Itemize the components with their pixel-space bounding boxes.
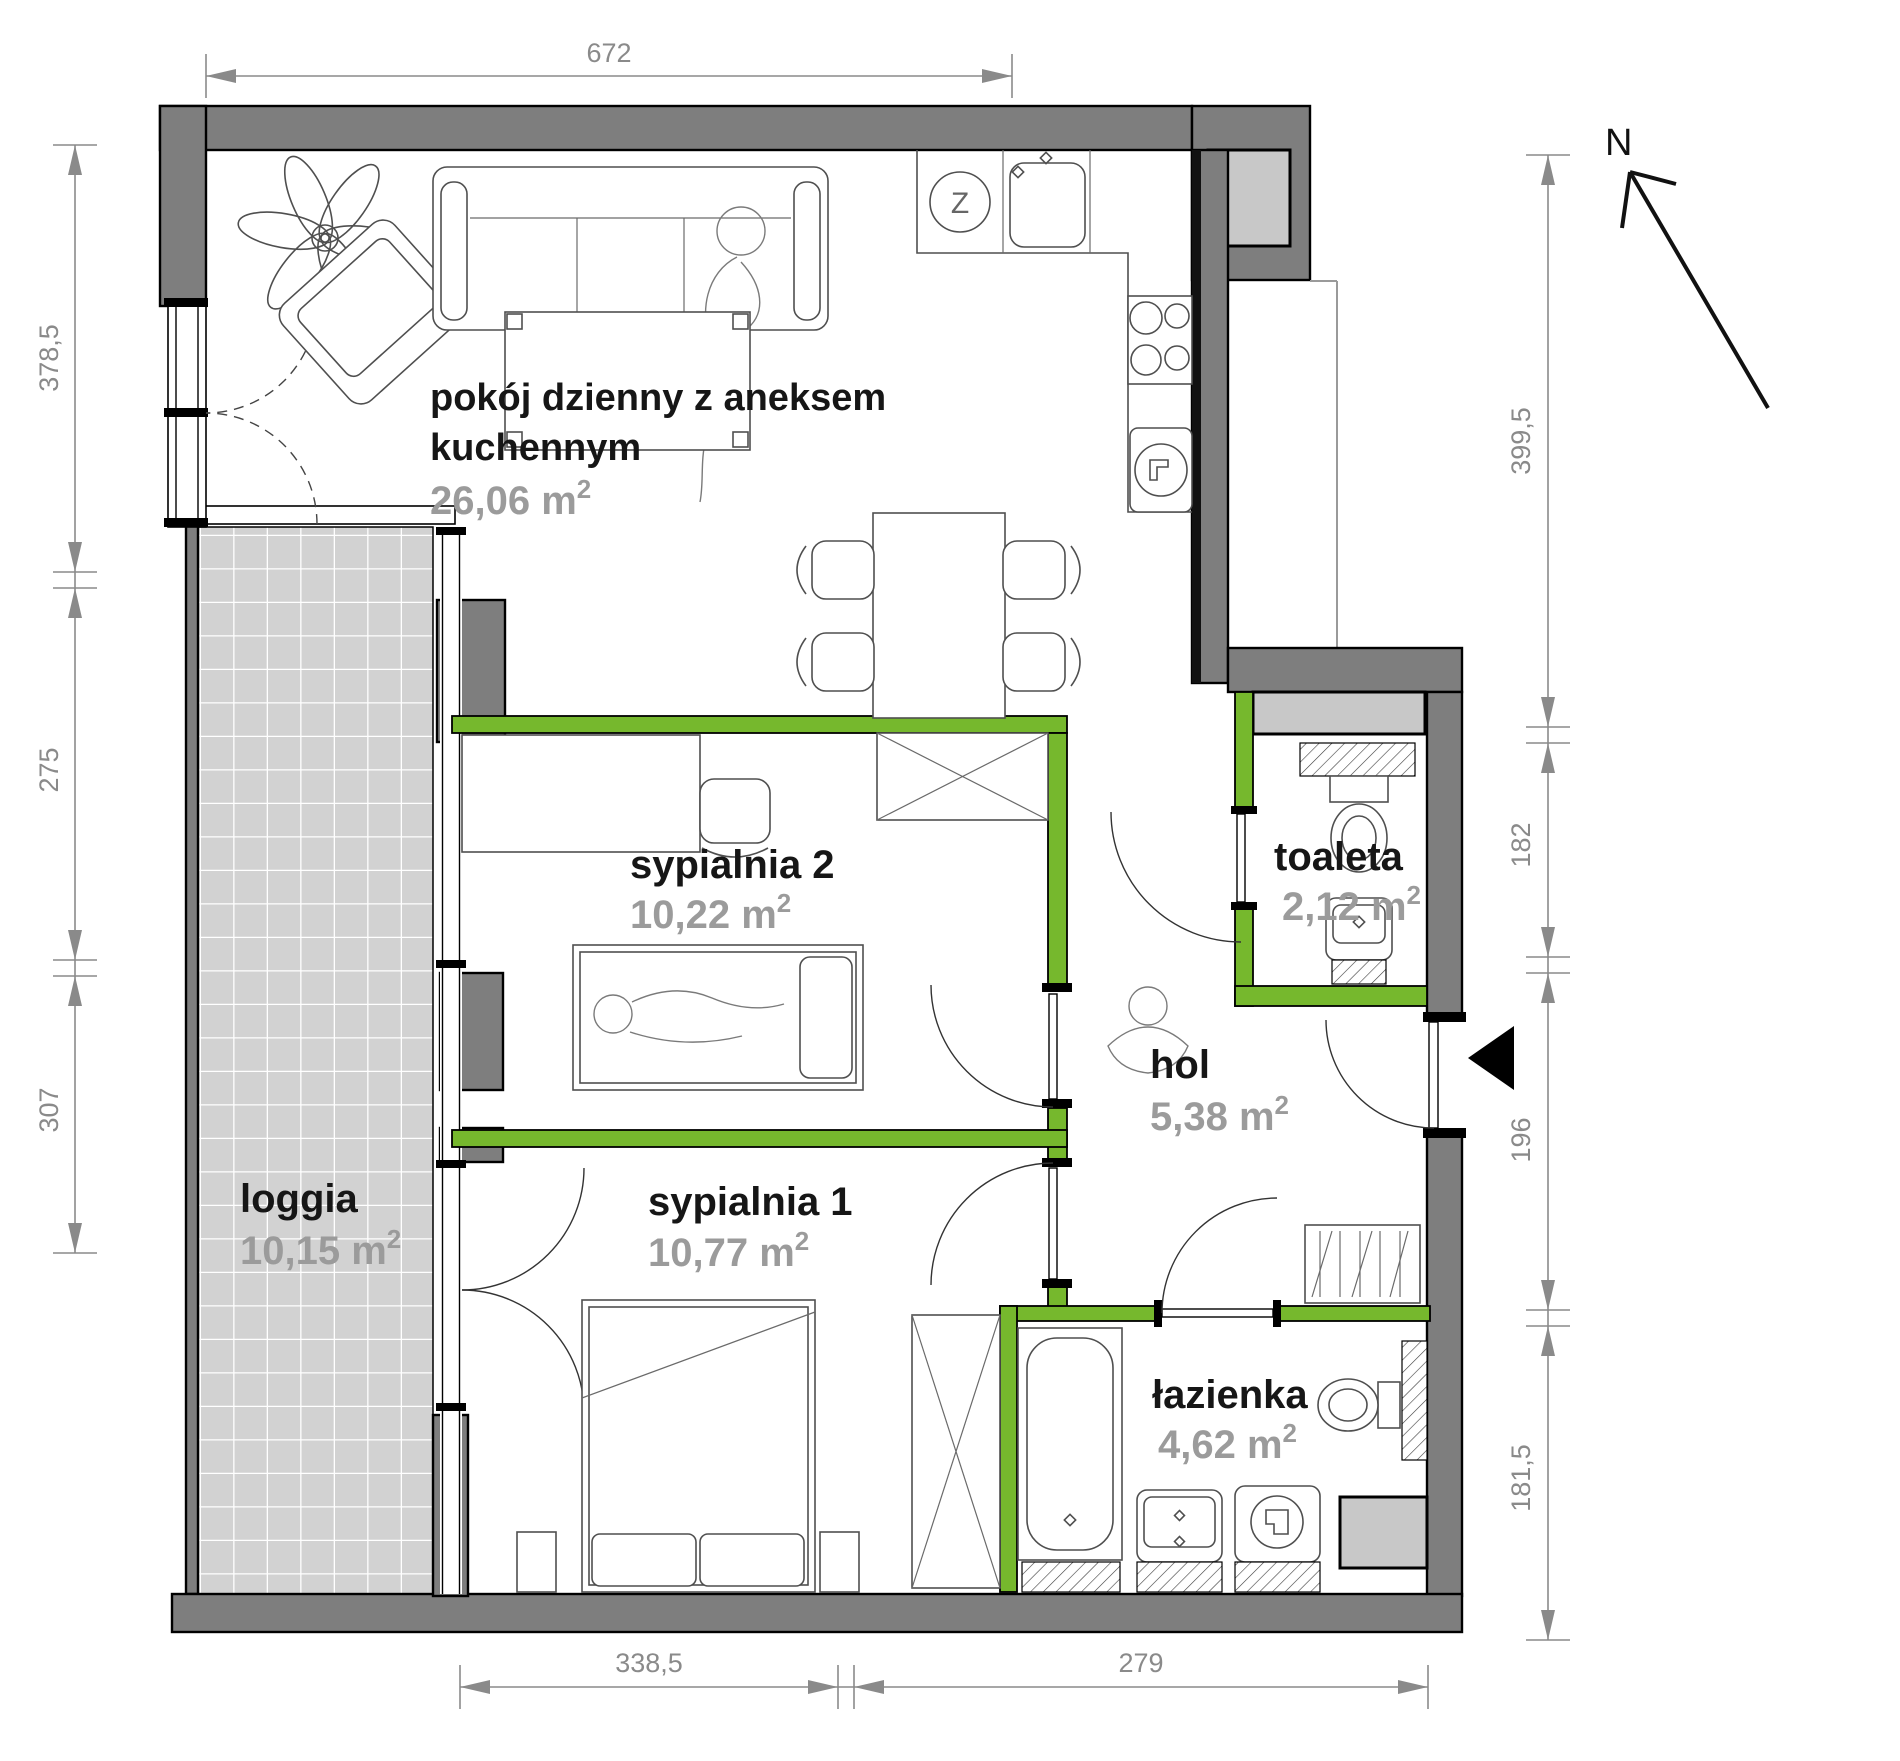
hall-area: 5,38 m2	[1150, 1090, 1289, 1139]
bathroom-vent-shaft	[1402, 1341, 1427, 1460]
bottom-wall	[172, 1594, 1462, 1632]
dim-right-182: 182	[1506, 822, 1536, 867]
floor-plan-drawing: Z	[0, 0, 1900, 1761]
bedroom1-loggia-door-swing-bottom	[462, 1290, 584, 1412]
north-arrow-shaft	[1630, 172, 1768, 408]
dim-bottom-279: 279	[1118, 1648, 1163, 1678]
bedroom2-door-leaf	[1049, 994, 1057, 1099]
bedroom1-loggia-door-swing-top	[462, 1168, 584, 1290]
bedroom2-hall-wall	[1048, 733, 1067, 985]
bedroom2-area: 10,22 m2	[630, 888, 791, 937]
dim-right-196: 196	[1506, 1117, 1536, 1162]
nightstand-left-icon	[517, 1532, 556, 1592]
left-wall-top	[160, 106, 206, 306]
bedroom1-area: 10,77 m2	[648, 1226, 809, 1275]
loggia-tiled-floor	[198, 527, 433, 1594]
north-label: N	[1605, 122, 1632, 164]
bed1-pillow-right	[700, 1534, 804, 1586]
north-arrow: N	[1605, 122, 1768, 408]
dimension-left: 378,5 275 307	[34, 145, 97, 1253]
dim-left-378: 378,5	[34, 324, 64, 392]
bedroom1-door-swing	[931, 1163, 1053, 1285]
bedroom2-bedroom1-wall	[452, 1130, 1067, 1147]
washing-machine-icon	[1235, 1486, 1320, 1562]
hall-label: hol	[1150, 1043, 1210, 1087]
bathroom-top-wall-left	[1000, 1306, 1160, 1321]
wardrobe2-icon	[877, 733, 1048, 820]
sink-base-hatch	[1137, 1562, 1222, 1592]
toaleta-top-wall-band	[1228, 648, 1462, 692]
fridge-icon	[1130, 428, 1192, 512]
bed2-pillow	[800, 957, 852, 1078]
right-wall-lower	[1427, 1130, 1462, 1596]
dim-right-181: 181,5	[1506, 1444, 1536, 1512]
loggia-area-label: 10,15 m2	[240, 1224, 401, 1273]
toaleta-sink-cabinet	[1332, 960, 1386, 984]
bed1-pillow-left	[592, 1534, 696, 1586]
toaleta-bottom-wall	[1235, 986, 1427, 1006]
entrance-door-swing	[1326, 1020, 1434, 1128]
washer-base-hatch	[1235, 1562, 1320, 1592]
dim-left-307: 307	[34, 1087, 64, 1132]
toaleta-area: 2,12 m2	[1282, 880, 1421, 929]
bed1-icon	[582, 1300, 815, 1592]
bathroom-door-leaf	[1162, 1309, 1273, 1317]
bathroom-toilet-icon	[1318, 1379, 1400, 1431]
bedroom2-label: sypialnia 2	[630, 843, 835, 887]
bedroom-facade-glazing	[440, 527, 462, 1594]
dishwasher-glyph: Z	[951, 187, 969, 220]
bathtub-base-hatch	[1022, 1562, 1120, 1592]
bedroom2-door-swing	[931, 985, 1053, 1107]
bedroom1-label: sypialnia 1	[648, 1180, 853, 1224]
living-right-wall-inner-face	[1192, 150, 1201, 683]
bathroom-area: 4,62 m2	[1158, 1418, 1297, 1467]
entrance-marker	[1468, 1026, 1514, 1090]
loggia-left-wall	[186, 520, 198, 1594]
living-room-label: pokój dzienny z aneksem	[430, 377, 886, 419]
desk-icon	[462, 735, 700, 852]
bed2-icon	[573, 945, 863, 1090]
right-wall-upper	[1427, 692, 1462, 1020]
sofa-icon	[433, 167, 828, 330]
entrance-door-leaf	[1429, 1022, 1438, 1128]
bathroom-left-wall	[1000, 1306, 1017, 1592]
toaleta-wall-shaft-strip	[1253, 692, 1425, 734]
dim-right-399: 399,5	[1506, 407, 1536, 475]
kitchen-sink-icon	[1010, 163, 1085, 247]
living-room-area: 26,06 m2	[430, 474, 591, 523]
bathroom-corner-shaft	[1340, 1497, 1427, 1568]
hall-furniture	[1108, 987, 1420, 1303]
bathroom-door-swing	[1162, 1198, 1277, 1313]
bathroom-top-wall-right	[1277, 1306, 1430, 1321]
dim-left-275: 275	[34, 747, 64, 792]
loggia-top-slab	[186, 506, 455, 524]
bathtub-icon	[1018, 1328, 1122, 1560]
coat-rack-icon	[1305, 1225, 1420, 1303]
bedroom1-furniture	[517, 1300, 1000, 1592]
toaleta-label: toaleta	[1274, 835, 1404, 879]
dimension-right: 399,5 182 196 181,5	[1506, 155, 1570, 1640]
dim-bottom-338: 338,5	[615, 1648, 683, 1678]
dimension-top: 672	[206, 38, 1012, 98]
living-room-label-line2: kuchennym	[430, 427, 641, 469]
dining-set-icon	[797, 513, 1080, 718]
wardrobe1-icon	[912, 1315, 1000, 1588]
dimension-bottom: 338,5 279	[460, 1648, 1428, 1709]
bathroom-label: łazienka	[1152, 1373, 1308, 1417]
toaleta-left-wall-upper	[1235, 692, 1253, 808]
toaleta-door-swing	[1111, 812, 1241, 942]
loggia-area	[186, 506, 455, 1594]
bedroom1-door-leaf	[1049, 1168, 1057, 1279]
floor-plan-page: Z	[0, 0, 1900, 1761]
toaleta-door-leaf	[1237, 814, 1245, 902]
dining-table	[873, 513, 1005, 718]
loggia-label: loggia	[240, 1177, 359, 1221]
dim-top-672: 672	[586, 38, 631, 68]
top-wall	[160, 106, 1192, 150]
nightstand-right-icon	[820, 1532, 859, 1592]
kitchen-annex: Z	[917, 150, 1192, 512]
bathroom-sink-icon	[1137, 1490, 1222, 1562]
toaleta-vent-shaft	[1300, 743, 1415, 776]
